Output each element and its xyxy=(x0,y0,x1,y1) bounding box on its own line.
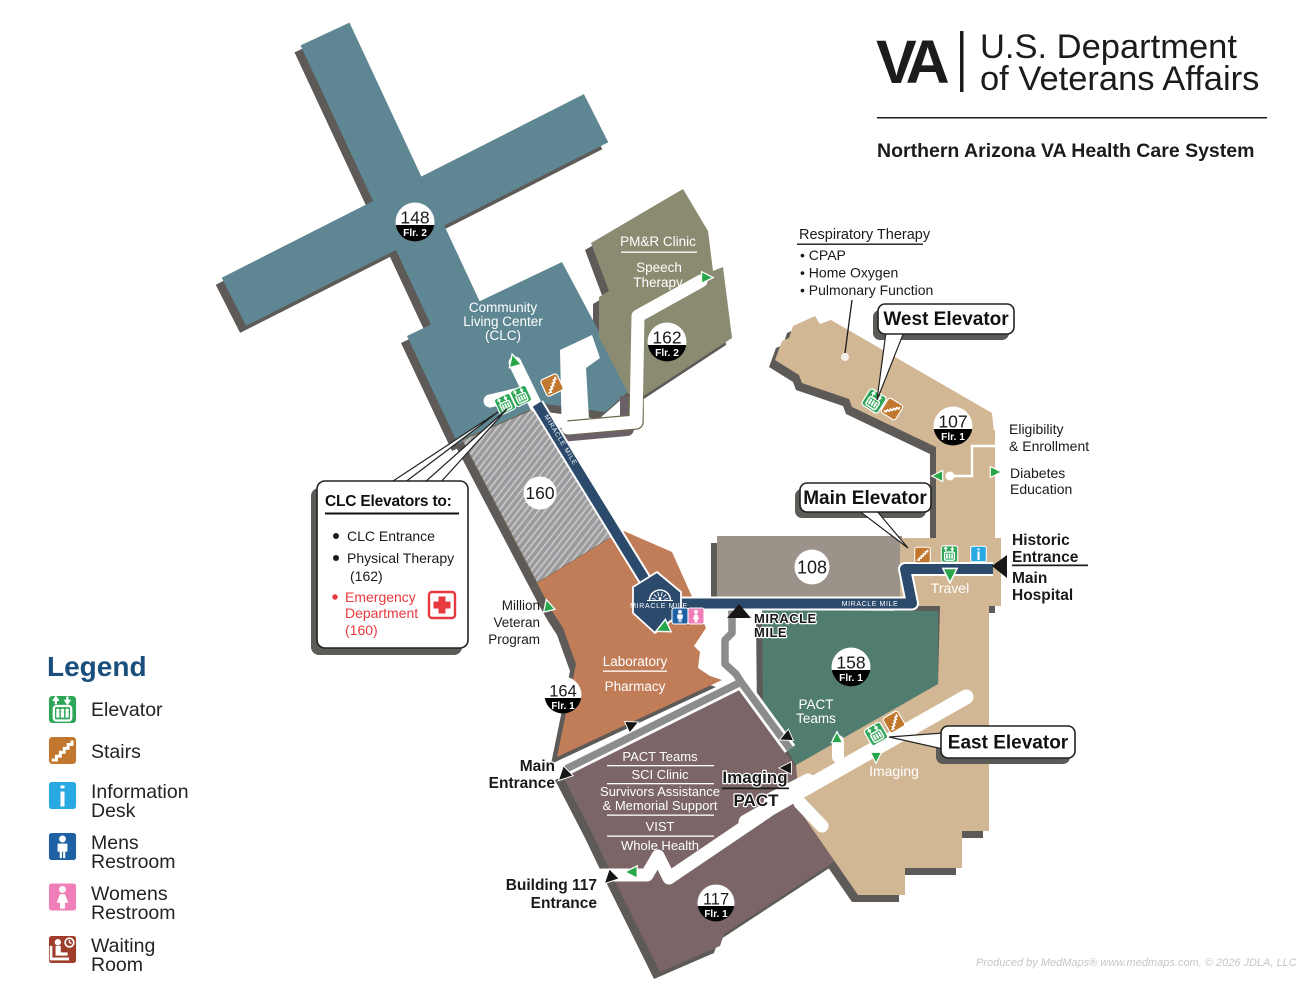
svg-text:• Home Oxygen: • Home Oxygen xyxy=(800,265,898,281)
svg-text:160: 160 xyxy=(525,483,554,503)
svg-text:Diabetes: Diabetes xyxy=(1010,465,1065,481)
svg-text:• Pulmonary Function: • Pulmonary Function xyxy=(800,282,933,298)
svg-text:164: 164 xyxy=(549,683,577,701)
svg-text:PACT: PACT xyxy=(733,791,779,810)
svg-text:Department: Department xyxy=(345,605,418,621)
svg-text:West Elevator: West Elevator xyxy=(883,309,1009,330)
svg-text:Flr. 2: Flr. 2 xyxy=(655,348,679,359)
svg-text:Stairs: Stairs xyxy=(91,741,141,763)
svg-text:(162): (162) xyxy=(350,568,383,584)
svg-text:Main Elevator: Main Elevator xyxy=(803,488,927,509)
svg-text:Community: Community xyxy=(469,300,538,315)
svg-text:MIRACLE MILE: MIRACLE MILE xyxy=(842,601,899,608)
svg-text:Imaging: Imaging xyxy=(869,763,919,779)
svg-text:148: 148 xyxy=(400,208,429,228)
svg-text:SCI Clinic: SCI Clinic xyxy=(631,767,689,782)
svg-text:107: 107 xyxy=(938,412,967,432)
svg-text:Flr. 1: Flr. 1 xyxy=(839,673,863,684)
svg-text:Survivors Assistance: Survivors Assistance xyxy=(600,784,720,799)
svg-text:Education: Education xyxy=(1010,481,1072,497)
svg-text:(160): (160) xyxy=(345,622,378,638)
svg-text:Main: Main xyxy=(1012,570,1047,587)
svg-text:Northern Arizona VA Health Car: Northern Arizona VA Health Care System xyxy=(877,140,1254,162)
svg-text:CLC Elevators to:: CLC Elevators to: xyxy=(325,493,452,510)
svg-text:CLC Entrance: CLC Entrance xyxy=(347,528,435,544)
svg-text:Entrance: Entrance xyxy=(1012,549,1079,566)
svg-text:162: 162 xyxy=(652,328,681,348)
svg-text:117: 117 xyxy=(703,891,729,909)
svg-text:Produced by MedMaps® www.medm: Produced by MedMaps® www.medmaps.com. © … xyxy=(976,957,1297,969)
svg-text:PACT: PACT xyxy=(798,697,833,712)
svg-text:Entrance: Entrance xyxy=(531,895,598,912)
svg-text:Hospital: Hospital xyxy=(1012,587,1073,604)
svg-text:Teams: Teams xyxy=(796,711,836,726)
svg-text:East Elevator: East Elevator xyxy=(948,733,1069,754)
svg-text:Historic: Historic xyxy=(1012,532,1070,549)
svg-text:158: 158 xyxy=(836,653,865,673)
svg-text:VA: VA xyxy=(876,28,949,96)
svg-text:Living Center: Living Center xyxy=(463,314,543,329)
svg-text:& Memorial Support: & Memorial Support xyxy=(603,798,718,813)
svg-text:(CLC): (CLC) xyxy=(485,328,521,343)
svg-text:PACT Teams: PACT Teams xyxy=(622,749,698,764)
svg-text:Veteran: Veteran xyxy=(493,615,540,630)
svg-text:Entrance: Entrance xyxy=(489,775,556,792)
svg-text:MILE: MILE xyxy=(754,625,787,640)
svg-text:Flr. 2: Flr. 2 xyxy=(403,228,427,239)
svg-text:Flr. 1: Flr. 1 xyxy=(704,909,728,920)
svg-text:Desk: Desk xyxy=(91,800,136,822)
svg-text:Room: Room xyxy=(91,954,143,976)
svg-text:PM&R Clinic: PM&R Clinic xyxy=(620,234,696,249)
svg-text:Eligibility: Eligibility xyxy=(1009,421,1063,437)
svg-text:Whole Health: Whole Health xyxy=(621,838,699,853)
svg-text:Respiratory Therapy: Respiratory Therapy xyxy=(799,227,931,243)
svg-text:Program: Program xyxy=(488,632,540,647)
svg-text:Million: Million xyxy=(502,598,540,613)
svg-text:Restroom: Restroom xyxy=(91,902,176,924)
svg-text:Travel: Travel xyxy=(931,580,969,596)
svg-text:Emergency: Emergency xyxy=(345,589,416,605)
svg-text:Main: Main xyxy=(520,758,555,775)
svg-text:Therapy: Therapy xyxy=(633,275,683,290)
svg-text:Elevator: Elevator xyxy=(91,699,163,721)
svg-text:Flr. 1: Flr. 1 xyxy=(941,432,965,443)
svg-text:Physical Therapy: Physical Therapy xyxy=(347,550,454,566)
svg-text:& Enrollment: & Enrollment xyxy=(1009,438,1089,454)
svg-text:• CPAP: • CPAP xyxy=(800,247,846,263)
svg-text:MIRACLE: MIRACLE xyxy=(754,611,817,626)
svg-text:Building 117: Building 117 xyxy=(506,877,597,894)
svg-text:Speech: Speech xyxy=(636,260,682,275)
svg-text:Legend: Legend xyxy=(47,651,147,682)
svg-text:Imaging: Imaging xyxy=(722,768,787,787)
svg-text:Pharmacy: Pharmacy xyxy=(605,679,666,694)
svg-text:VIST: VIST xyxy=(646,819,675,834)
svg-text:Restroom: Restroom xyxy=(91,851,176,873)
svg-text:Flr. 1: Flr. 1 xyxy=(551,701,575,712)
svg-text:of Veterans Affairs: of Veterans Affairs xyxy=(980,60,1259,98)
svg-text:108: 108 xyxy=(797,558,827,578)
svg-text:Laboratory: Laboratory xyxy=(603,654,668,669)
